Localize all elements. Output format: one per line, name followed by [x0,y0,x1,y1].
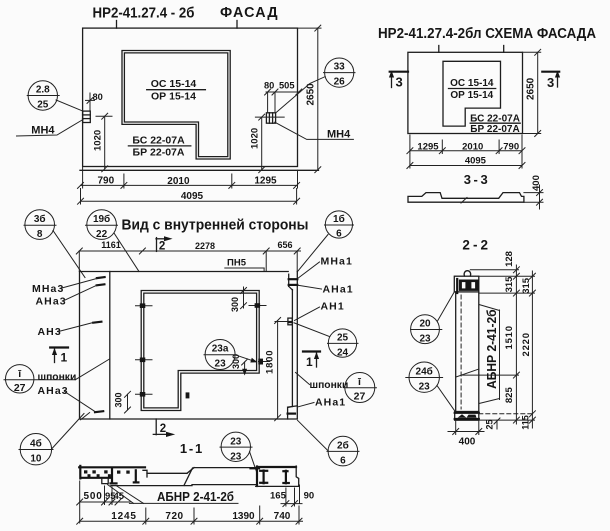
svg-text:315: 315 [504,276,515,293]
svg-text:ФАСАД: ФАСАД [220,5,278,21]
svg-text:АБНР 2-41-2б: АБНР 2-41-2б [485,309,499,389]
svg-text:24: 24 [337,348,349,359]
svg-text:80: 80 [264,81,274,91]
svg-text:8: 8 [37,229,43,240]
svg-text:4095: 4095 [181,191,204,202]
svg-text:ОС 15-14: ОС 15-14 [450,78,494,89]
svg-text:23: 23 [215,359,227,370]
svg-text:33: 33 [334,62,346,73]
svg-text:АНа3: АНа3 [36,296,67,308]
svg-text:26: 26 [334,77,346,88]
svg-text:4095: 4095 [465,155,487,166]
svg-text:1: 1 [306,355,313,369]
svg-text:300: 300 [230,297,240,312]
svg-text:23: 23 [419,334,431,345]
svg-text:шпонки: шпонки [310,380,349,391]
svg-text:25: 25 [37,100,49,111]
svg-text:2.8: 2.8 [36,85,50,96]
svg-text:23: 23 [230,451,242,462]
svg-text:3б: 3б [34,213,46,225]
svg-text:1161: 1161 [101,240,121,250]
svg-text:АБНР 2-41-2б: АБНР 2-41-2б [157,490,234,504]
svg-text:115: 115 [521,415,531,430]
svg-text:2: 2 [159,240,165,252]
svg-text:ОР 15-14: ОР 15-14 [151,91,196,103]
svg-text:400: 400 [459,437,476,448]
svg-text:1-1: 1-1 [180,441,202,456]
svg-text:2278: 2278 [195,241,215,251]
svg-text:1: 1 [61,351,68,365]
svg-text:400: 400 [531,175,542,191]
svg-text:10: 10 [30,454,42,465]
svg-text:720: 720 [165,511,183,522]
svg-text:2010: 2010 [462,141,483,152]
svg-text:3: 3 [396,75,403,90]
svg-text:МН4: МН4 [327,129,351,141]
svg-text:500: 500 [84,491,103,502]
svg-text:АНа3: АНа3 [38,385,69,397]
svg-text:27: 27 [354,391,366,403]
svg-text:БР 22-07А: БР 22-07А [470,124,519,135]
svg-text:МНа3: МНа3 [32,283,64,295]
svg-text:22: 22 [96,229,108,240]
svg-text:505: 505 [279,81,295,91]
svg-text:АНа1: АНа1 [315,397,346,409]
svg-text:165: 165 [270,491,287,502]
svg-text:2б: 2б [337,440,349,452]
svg-text:1510: 1510 [504,325,515,349]
svg-text:4б: 4б [30,438,42,450]
svg-text:19б: 19б [93,213,110,225]
svg-text:45: 45 [114,491,125,502]
svg-text:23: 23 [419,382,431,393]
svg-text:740: 740 [274,511,291,522]
svg-text:128: 128 [504,251,515,267]
svg-text:1б: 1б [333,213,345,225]
svg-text:25: 25 [485,419,495,429]
svg-text:1390: 1390 [232,511,255,522]
svg-text:315: 315 [521,277,532,294]
svg-text:БР 22-07А: БР 22-07А [133,147,185,159]
svg-text:1245: 1245 [111,511,136,522]
svg-text:1295: 1295 [254,175,277,186]
svg-text:НР2-41.27.4 - 2б: НР2-41.27.4 - 2б [93,5,195,21]
svg-text:2650: 2650 [526,77,537,100]
svg-text:2: 2 [160,423,166,435]
svg-text:БС 22-07А: БС 22-07А [132,135,185,147]
svg-text:6: 6 [340,456,346,467]
svg-text:ОС 15-14: ОС 15-14 [151,78,197,90]
svg-text:1020: 1020 [93,130,104,151]
svg-text:6: 6 [336,229,342,240]
svg-text:3: 3 [547,75,554,90]
svg-text:1800: 1800 [265,350,276,374]
svg-text:1295: 1295 [417,141,439,152]
svg-text:2010: 2010 [167,176,190,187]
svg-text:МНа1: МНа1 [321,256,353,268]
svg-text:НР2-41.27.4-2бл СХЕМА ФАСАДА: НР2-41.27.4-2бл СХЕМА ФАСАДА [378,26,596,42]
svg-text:790: 790 [97,175,114,186]
svg-text:23: 23 [230,436,242,447]
svg-text:ПН5: ПН5 [227,257,247,268]
svg-text:1020: 1020 [250,128,261,149]
svg-text:2-2: 2-2 [462,237,488,252]
svg-text:шпонки: шпонки [38,372,77,383]
svg-text:300: 300 [113,392,123,407]
svg-text:20: 20 [419,319,431,330]
svg-text:25: 25 [337,333,349,344]
svg-text:Вид с внутренней стороны: Вид с внутренней стороны [122,217,309,233]
svg-text:АН1: АН1 [321,301,345,313]
svg-text:656: 656 [277,240,292,250]
svg-text:2220: 2220 [521,332,532,356]
svg-text:27: 27 [14,382,26,394]
svg-text:ОР 15-14: ОР 15-14 [450,90,493,101]
svg-text:24б: 24б [416,366,433,378]
svg-text:90: 90 [304,491,315,502]
svg-text:АНа1: АНа1 [323,284,354,296]
svg-text:790: 790 [503,141,519,152]
svg-text:23а: 23а [212,344,229,355]
svg-text:3-3: 3-3 [464,172,488,187]
svg-text:825: 825 [504,387,515,404]
